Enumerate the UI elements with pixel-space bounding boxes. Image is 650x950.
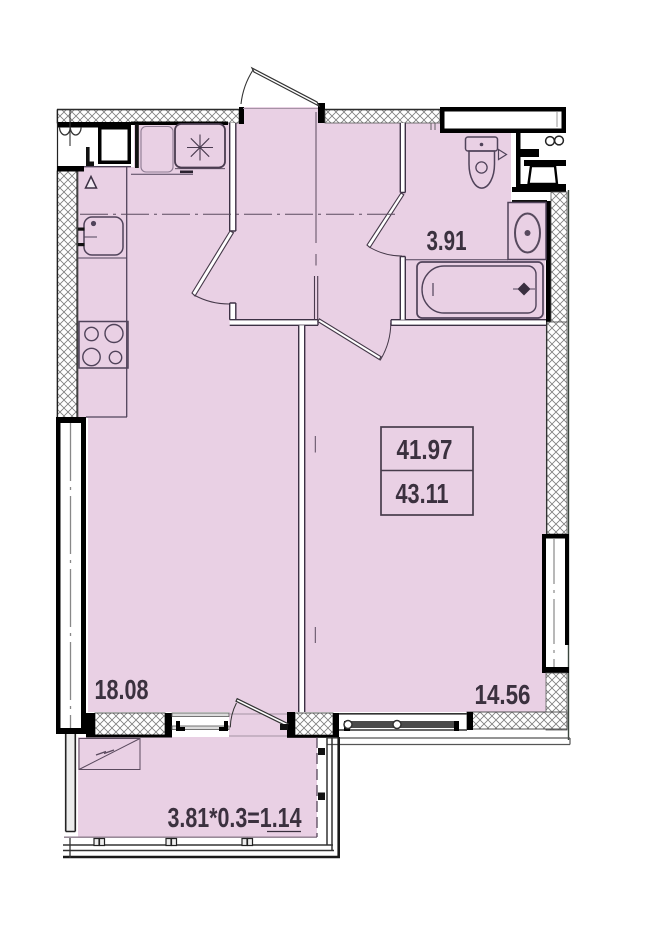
svg-text:41.97: 41.97 <box>397 434 453 465</box>
svg-text:3.91: 3.91 <box>427 225 467 256</box>
svg-text:14.56: 14.56 <box>475 679 531 710</box>
svg-text:18.08: 18.08 <box>95 674 149 705</box>
svg-text:3.81*0.3=1.14: 3.81*0.3=1.14 <box>168 802 302 833</box>
svg-text:43.11: 43.11 <box>396 478 449 509</box>
